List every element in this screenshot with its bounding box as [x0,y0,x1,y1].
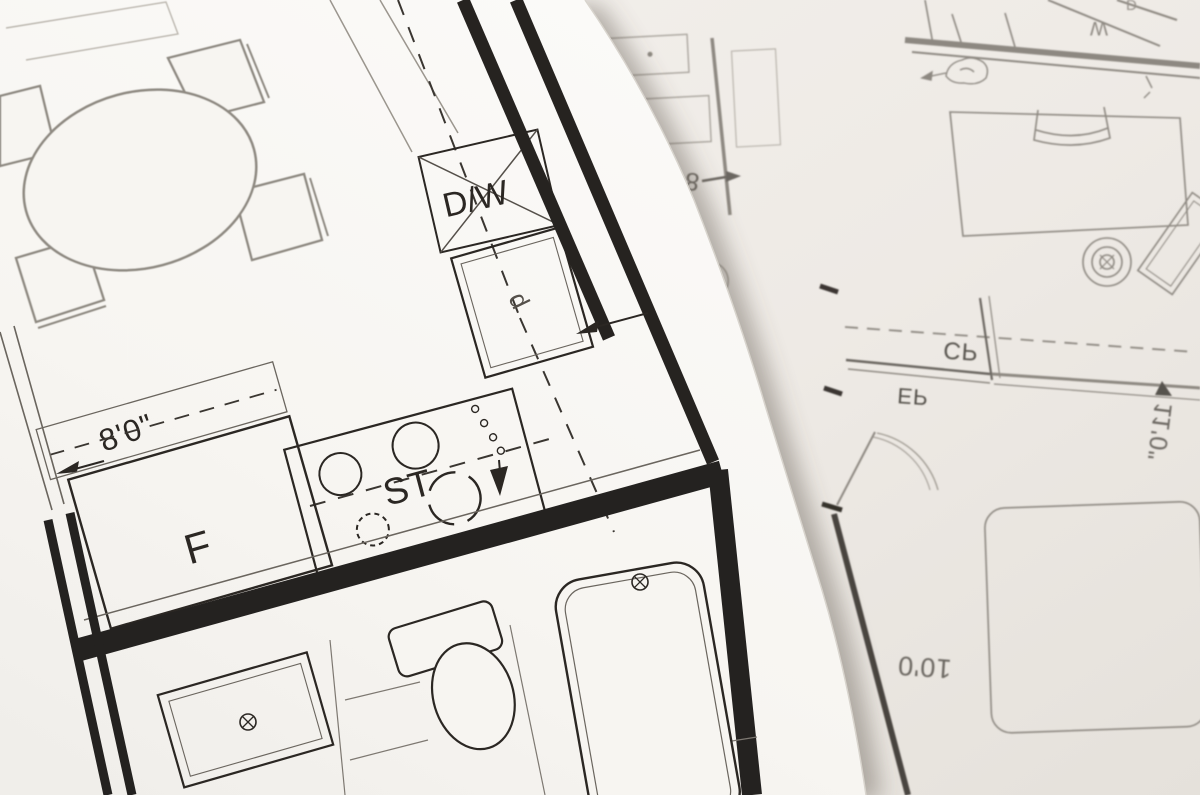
blueprint-photo: W D [0,0,1200,795]
closet-ep-label: EP [897,383,930,410]
washer-letter: W [1090,17,1108,38]
dim-10ft-label: 10'0 [896,650,952,684]
dryer-letter: D [1126,0,1137,13]
closet-cp-label: CP [943,336,980,365]
